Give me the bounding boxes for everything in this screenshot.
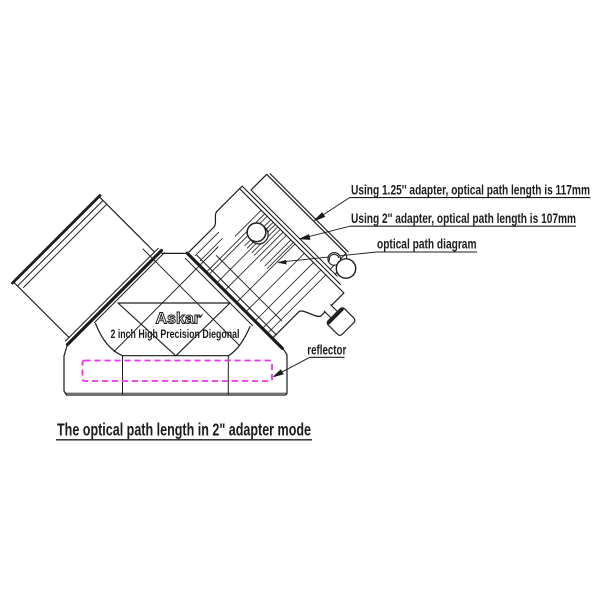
svg-text:2 inch High Precision Diegonal: 2 inch High Precision Diegonal (111, 329, 240, 341)
svg-text:Using 2'' adapter, optical pat: Using 2'' adapter, optical path length i… (351, 210, 576, 226)
svg-text:Askar: Askar (156, 311, 200, 328)
svg-text:optical path diagram: optical path diagram (377, 237, 477, 252)
svg-text:reflector: reflector (307, 342, 347, 357)
svg-text:The optical path length in 2": The optical path length in 2" adapter mo… (57, 420, 311, 440)
svg-text:Using 1.25'' adapter, optical: Using 1.25'' adapter, optical path lengt… (351, 182, 590, 198)
